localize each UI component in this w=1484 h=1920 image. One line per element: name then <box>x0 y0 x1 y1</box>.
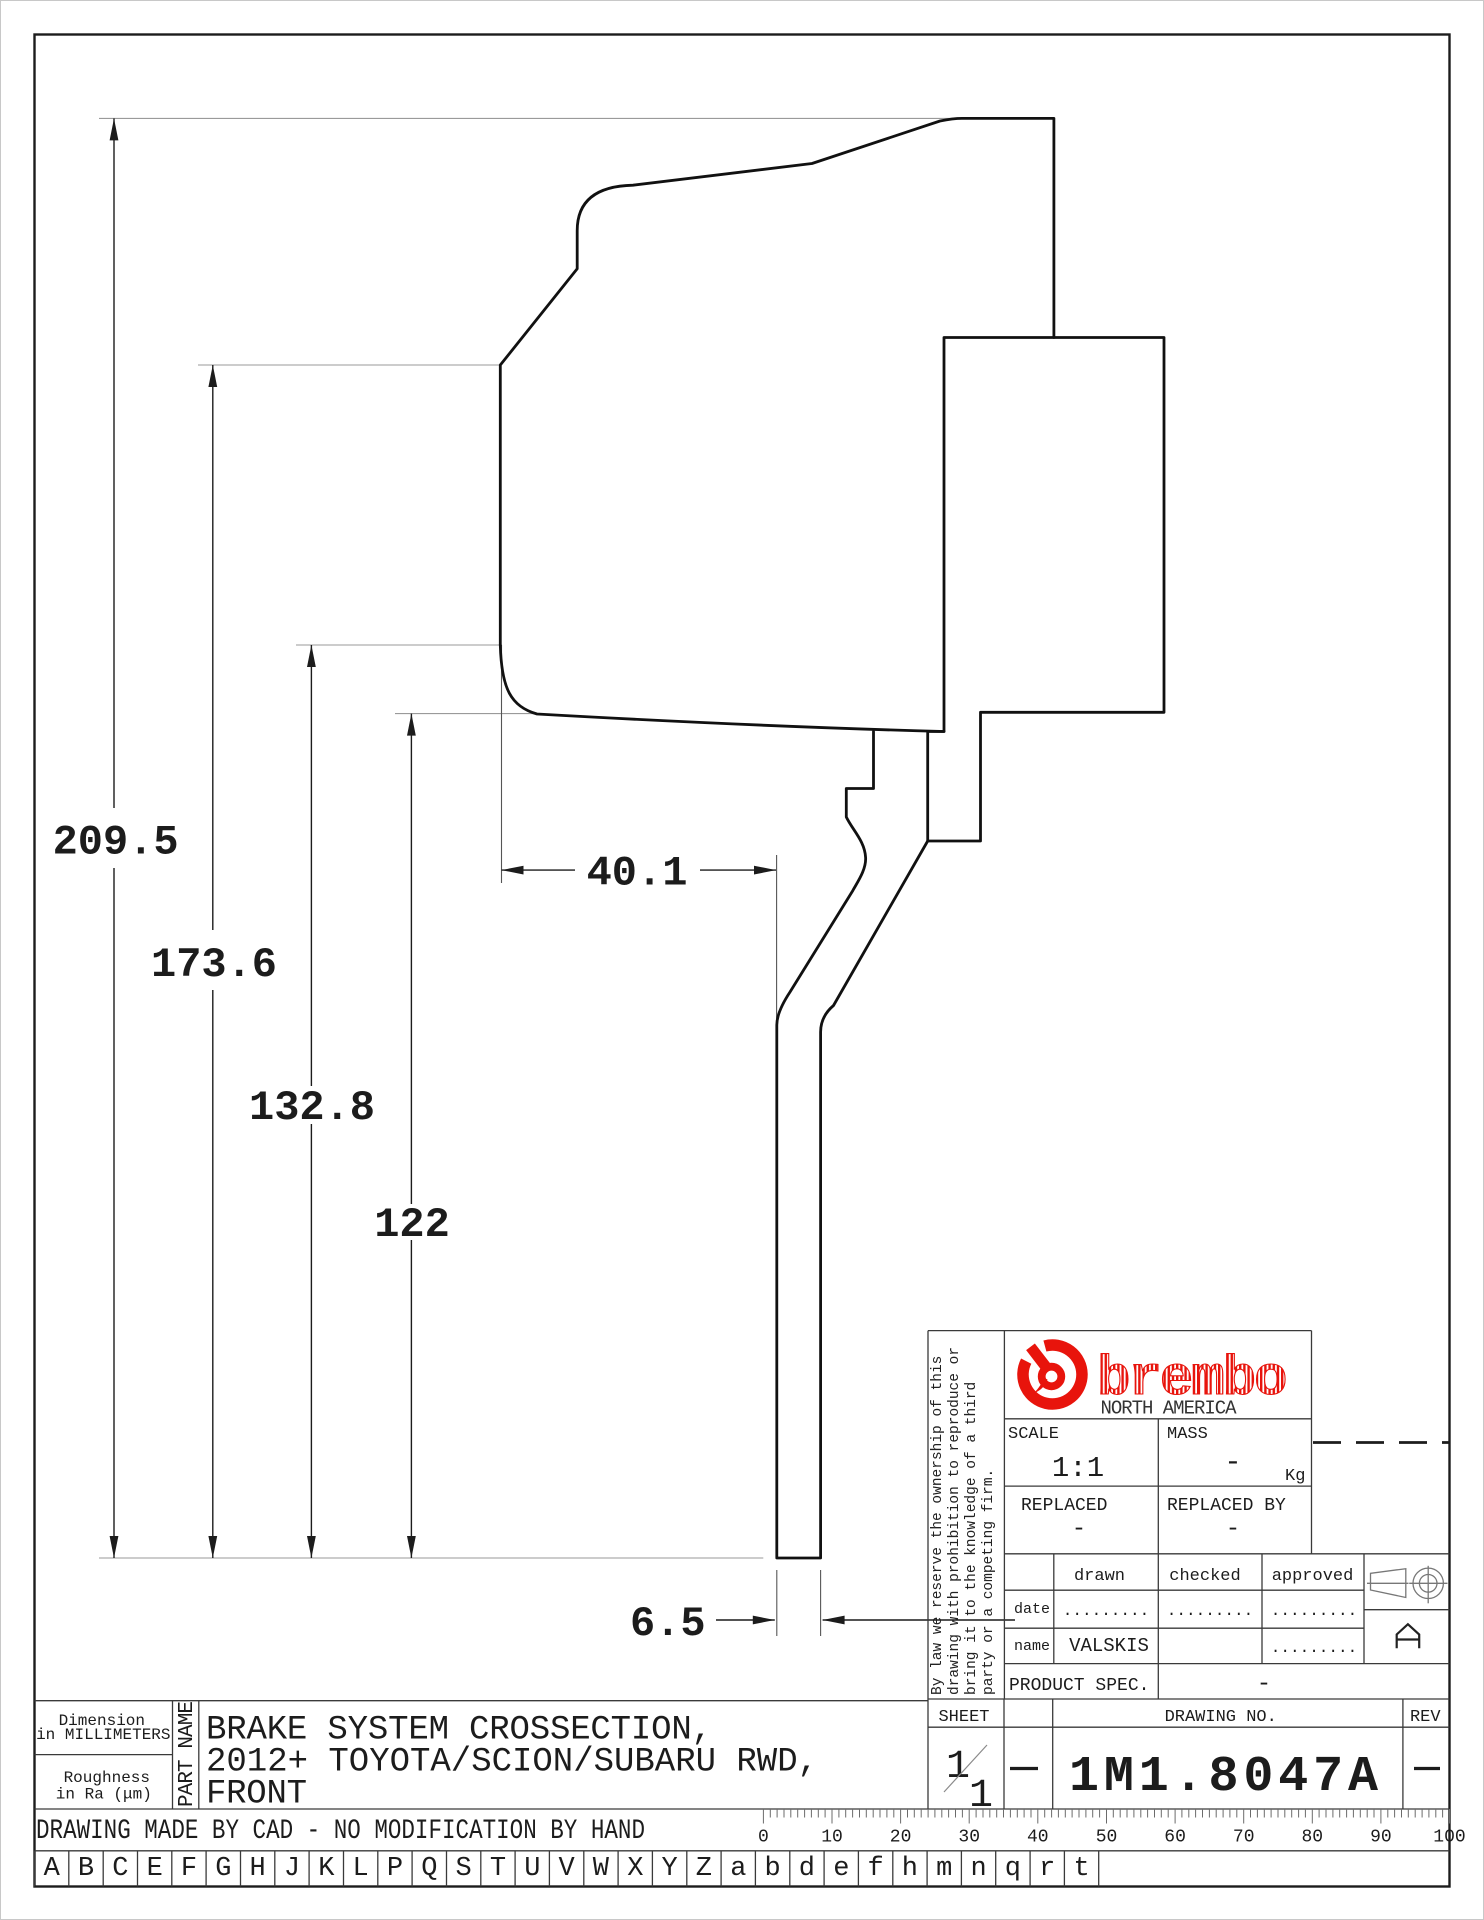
svg-text:-: - <box>1072 1516 1086 1543</box>
svg-text:MASS: MASS <box>1167 1425 1208 1444</box>
svg-text:20: 20 <box>890 1828 912 1848</box>
svg-text:REV: REV <box>1410 1708 1441 1727</box>
svg-text:drawn: drawn <box>1074 1567 1125 1586</box>
svg-text:Z: Z <box>696 1854 712 1884</box>
svg-text:-: - <box>1257 1671 1271 1698</box>
svg-text:30: 30 <box>958 1828 980 1848</box>
svg-text:REPLACED BY: REPLACED BY <box>1167 1496 1286 1516</box>
svg-text:90: 90 <box>1370 1828 1392 1848</box>
svg-text:in MILLIMETERS: in MILLIMETERS <box>36 1726 170 1744</box>
svg-text:K: K <box>318 1854 335 1884</box>
svg-text:C: C <box>112 1854 128 1884</box>
svg-text:40: 40 <box>1027 1828 1049 1848</box>
svg-text:Kg: Kg <box>1285 1467 1305 1486</box>
svg-text:d: d <box>799 1854 815 1884</box>
svg-text:bring it to the knowledge of a: bring it to the knowledge of a third <box>964 1382 980 1695</box>
svg-text:b: b <box>764 1854 780 1884</box>
svg-text:.........: ......... <box>1063 1602 1149 1620</box>
svg-text:a: a <box>730 1854 746 1884</box>
svg-text:VALSKIS: VALSKIS <box>1069 1635 1149 1657</box>
svg-text:Q: Q <box>421 1854 437 1884</box>
svg-text:X: X <box>627 1854 643 1884</box>
svg-text:0: 0 <box>758 1828 769 1848</box>
svg-text:G: G <box>215 1854 231 1884</box>
svg-text:W: W <box>593 1854 610 1884</box>
svg-text:80: 80 <box>1301 1828 1323 1848</box>
svg-text:U: U <box>524 1854 540 1884</box>
svg-text:132.8: 132.8 <box>249 1084 375 1132</box>
svg-text:B: B <box>78 1854 94 1884</box>
svg-text:PART NAME: PART NAME <box>176 1701 199 1807</box>
svg-text:J: J <box>284 1854 300 1884</box>
svg-text:S: S <box>455 1854 471 1884</box>
svg-text:.........: ......... <box>1271 1602 1357 1620</box>
svg-text:70: 70 <box>1233 1828 1255 1848</box>
svg-text:6.5: 6.5 <box>630 1600 706 1648</box>
svg-text:DRAWING NO.: DRAWING NO. <box>1165 1708 1277 1727</box>
svg-text:A: A <box>44 1854 61 1884</box>
svg-text:-: - <box>1224 1446 1241 1479</box>
svg-text:FRONT: FRONT <box>206 1776 307 1814</box>
svg-text:h: h <box>902 1854 918 1884</box>
svg-text:173.6: 173.6 <box>151 941 277 989</box>
svg-text:By law we reserve the ownershi: By law we reserve the ownership of this <box>930 1356 946 1695</box>
svg-text:drawing with prohibition to re: drawing with prohibition to reproduce or <box>947 1347 963 1695</box>
svg-text:50: 50 <box>1096 1828 1118 1848</box>
svg-text:in Ra (μm): in Ra (μm) <box>56 1786 152 1804</box>
svg-text:REPLACED: REPLACED <box>1021 1496 1107 1516</box>
svg-text:T: T <box>490 1854 506 1884</box>
svg-text:209.5: 209.5 <box>53 819 179 867</box>
svg-text:NORTH AMERICA: NORTH AMERICA <box>1101 1398 1238 1420</box>
svg-text:100: 100 <box>1433 1828 1465 1848</box>
svg-text:SCALE: SCALE <box>1008 1425 1059 1444</box>
svg-text:name: name <box>1014 1638 1050 1655</box>
svg-text:L: L <box>352 1854 368 1884</box>
svg-text:PRODUCT SPEC.: PRODUCT SPEC. <box>1009 1676 1149 1696</box>
svg-text:e: e <box>833 1854 849 1884</box>
svg-text:.........: ......... <box>1271 1639 1357 1657</box>
svg-text:10: 10 <box>821 1828 843 1848</box>
svg-text:SHEET: SHEET <box>938 1708 989 1727</box>
svg-text:f: f <box>867 1854 883 1884</box>
svg-text:1M1.8047A: 1M1.8047A <box>1069 1749 1378 1806</box>
svg-text:approved: approved <box>1272 1567 1354 1586</box>
svg-text:122: 122 <box>374 1201 450 1249</box>
svg-text:F: F <box>181 1854 197 1884</box>
svg-text:q: q <box>1005 1854 1021 1884</box>
svg-text:H: H <box>249 1854 265 1884</box>
svg-text:V: V <box>558 1854 575 1884</box>
svg-text:party or a competing firm.: party or a competing firm. <box>981 1469 997 1695</box>
svg-text:.........: ......... <box>1167 1602 1253 1620</box>
svg-text:60: 60 <box>1164 1828 1186 1848</box>
svg-text:P: P <box>387 1854 403 1884</box>
svg-text:r: r <box>1039 1854 1055 1884</box>
svg-text:checked: checked <box>1169 1567 1240 1586</box>
svg-text:m: m <box>936 1854 952 1884</box>
svg-text:DRAWING MADE BY CAD - NO MODIF: DRAWING MADE BY CAD - NO MODIFICATION BY… <box>36 1816 645 1847</box>
svg-text:date: date <box>1014 1601 1050 1618</box>
svg-text:E: E <box>147 1854 163 1884</box>
svg-text:-: - <box>1226 1516 1240 1543</box>
svg-text:1:1: 1:1 <box>1052 1452 1104 1485</box>
svg-text:40.1: 40.1 <box>587 850 688 898</box>
svg-text:t: t <box>1073 1854 1089 1884</box>
svg-text:n: n <box>970 1854 986 1884</box>
svg-text:Roughness: Roughness <box>64 1769 150 1787</box>
svg-text:Y: Y <box>661 1854 677 1884</box>
